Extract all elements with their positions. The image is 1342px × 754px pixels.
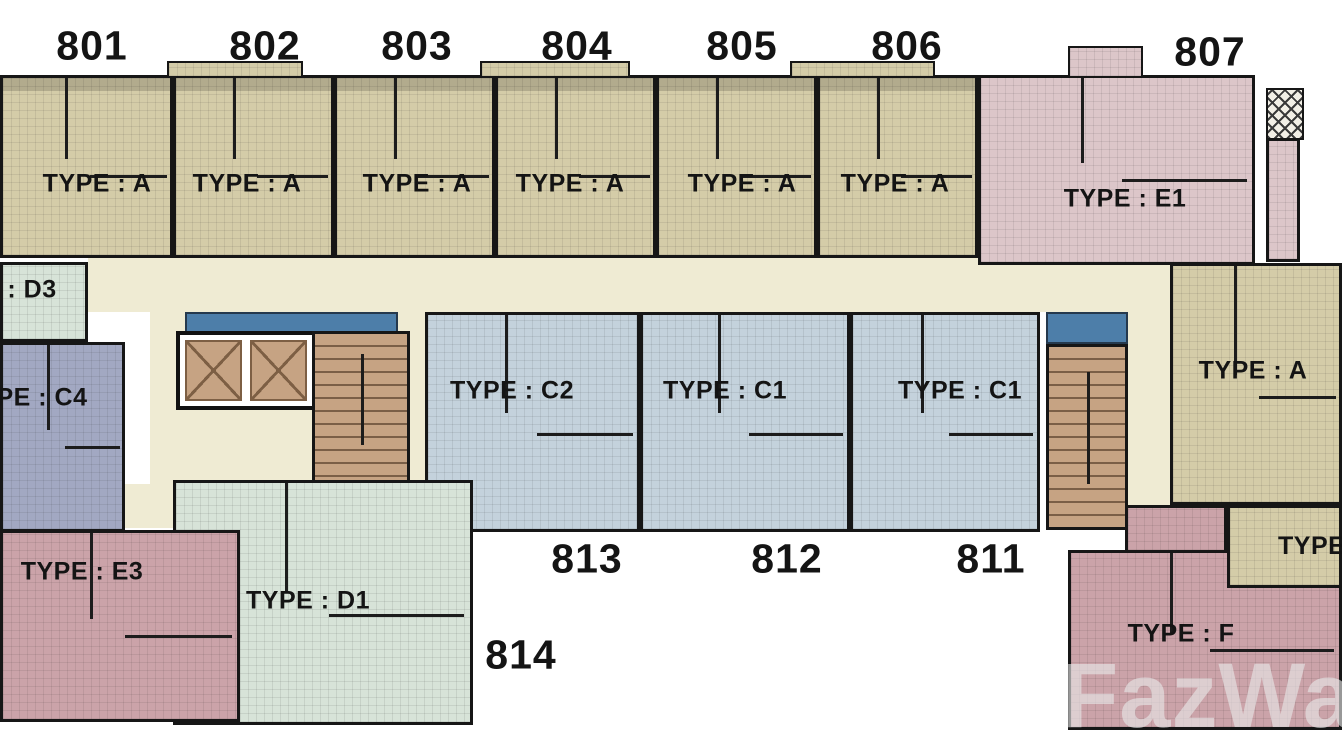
unit-802 <box>173 75 334 258</box>
type-label-811-c1: TYPE : C1 <box>898 379 1022 404</box>
service-shaft-column <box>1266 88 1304 140</box>
unit-812 <box>640 312 850 532</box>
balcony-strip-blue-left <box>185 312 398 333</box>
type-label-f: TYPE : F <box>1128 622 1235 647</box>
unit-807-balcony-strip <box>1266 138 1300 262</box>
type-label-812-c1: TYPE : C1 <box>663 379 787 404</box>
unit-807-bathroom-bump <box>1068 46 1143 78</box>
unit-805 <box>656 75 817 258</box>
type-label-c4: PE : C4 <box>0 386 88 411</box>
type-label-813-c2: TYPE : C2 <box>450 379 574 404</box>
hallway-corridor-right <box>1128 312 1170 522</box>
type-label-a-right: TYPE : A <box>1199 359 1308 384</box>
unit-number-812: 812 <box>751 539 822 580</box>
unit-number-807: 807 <box>1174 32 1245 73</box>
floor-plan: 801 802 803 804 805 806 807 813 812 811 … <box>0 0 1342 754</box>
unit-number-811: 811 <box>956 539 1025 580</box>
unit-f-arm <box>1125 505 1227 553</box>
unit-number-803: 803 <box>381 26 452 67</box>
unit-number-806: 806 <box>871 26 942 67</box>
hallway-corridor-top <box>88 258 1170 312</box>
stairwell-right <box>1046 344 1128 530</box>
elevator-car-2 <box>250 340 307 401</box>
balcony-strip-blue-right <box>1046 312 1128 344</box>
type-label-806: TYPE : A <box>841 172 950 197</box>
type-label-807-e1: TYPE : E1 <box>1064 187 1187 212</box>
unit-807 <box>978 75 1255 265</box>
unit-number-813: 813 <box>551 539 622 580</box>
unit-811 <box>850 312 1040 532</box>
elevator-car-1 <box>185 340 242 401</box>
type-label-802: TYPE : A <box>193 172 302 197</box>
unit-number-802: 802 <box>229 26 300 67</box>
type-label-d3: : D3 <box>7 278 56 303</box>
type-label-partial-right: TYPE <box>1278 534 1342 559</box>
elevator-bank <box>176 331 316 410</box>
watermark: FazWaz <box>1062 650 1342 742</box>
unit-801 <box>0 75 173 258</box>
unit-number-805: 805 <box>706 26 777 67</box>
unit-number-804: 804 <box>541 26 612 67</box>
unit-806 <box>817 75 978 258</box>
hallway-notch <box>125 484 177 528</box>
stairwell-left <box>312 331 410 483</box>
unit-803 <box>334 75 495 258</box>
type-label-805: TYPE : A <box>688 172 797 197</box>
type-label-801: TYPE : A <box>43 172 152 197</box>
type-label-804: TYPE : A <box>516 172 625 197</box>
type-label-814-d1: TYPE : D1 <box>246 589 370 614</box>
unit-c4 <box>0 342 125 532</box>
unit-804 <box>495 75 656 258</box>
unit-number-814: 814 <box>485 635 556 676</box>
type-label-803: TYPE : A <box>363 172 472 197</box>
unit-number-801: 801 <box>56 26 127 67</box>
type-label-e3: TYPE : E3 <box>21 560 144 585</box>
